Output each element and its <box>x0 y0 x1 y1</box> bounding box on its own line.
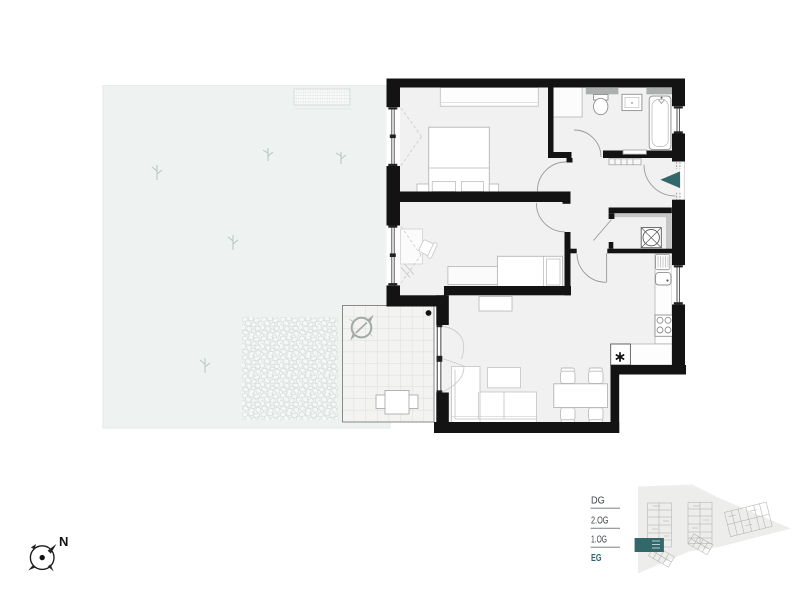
svg-text:2.OG: 2.OG <box>591 516 609 527</box>
svg-text:DG: DG <box>591 496 605 507</box>
svg-text:N: N <box>59 534 68 549</box>
svg-text:1.OG: 1.OG <box>591 535 607 546</box>
svg-text:EG: EG <box>591 552 602 564</box>
